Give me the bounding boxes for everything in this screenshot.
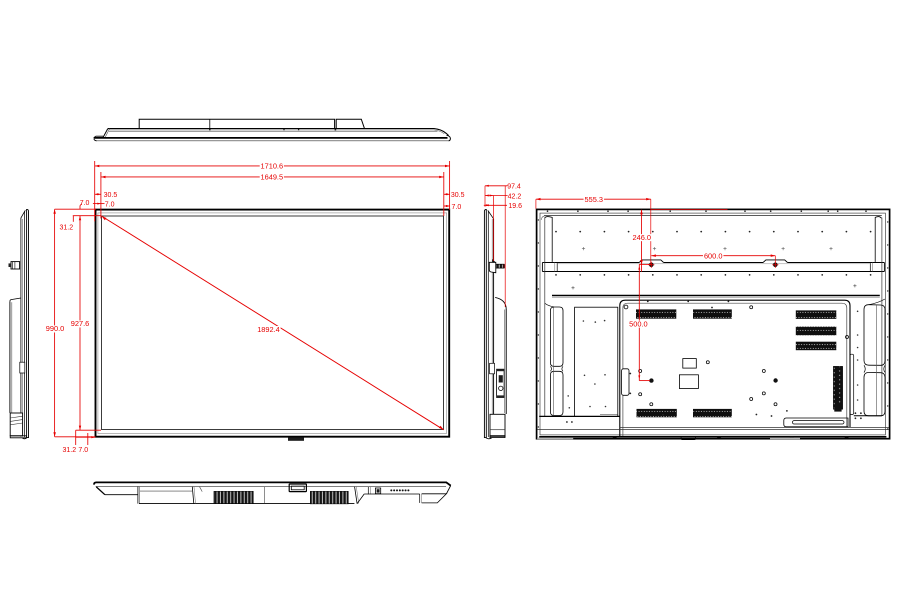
svg-text:30.5: 30.5 <box>104 192 118 199</box>
svg-text:1710.6: 1710.6 <box>260 162 283 171</box>
svg-text:97.4: 97.4 <box>507 184 521 191</box>
svg-text:19.6: 19.6 <box>508 203 522 210</box>
svg-text:7.0: 7.0 <box>80 200 90 207</box>
svg-text:1649.5: 1649.5 <box>260 173 283 182</box>
svg-text:555.3: 555.3 <box>585 195 604 204</box>
svg-text:30.5: 30.5 <box>451 192 465 199</box>
svg-text:1892.4: 1892.4 <box>257 325 280 334</box>
svg-text:7.0: 7.0 <box>452 204 462 211</box>
svg-text:600.0: 600.0 <box>704 251 723 260</box>
svg-text:500.0: 500.0 <box>629 319 648 328</box>
svg-text:42.2: 42.2 <box>508 193 522 200</box>
svg-text:7.0: 7.0 <box>78 447 88 454</box>
svg-text:927.6: 927.6 <box>71 319 90 328</box>
svg-text:990.0: 990.0 <box>46 324 65 333</box>
svg-text:31.2: 31.2 <box>59 224 73 231</box>
svg-text:31.2: 31.2 <box>62 447 76 454</box>
svg-text:7.0: 7.0 <box>105 201 115 208</box>
svg-text:246.0: 246.0 <box>633 233 652 242</box>
